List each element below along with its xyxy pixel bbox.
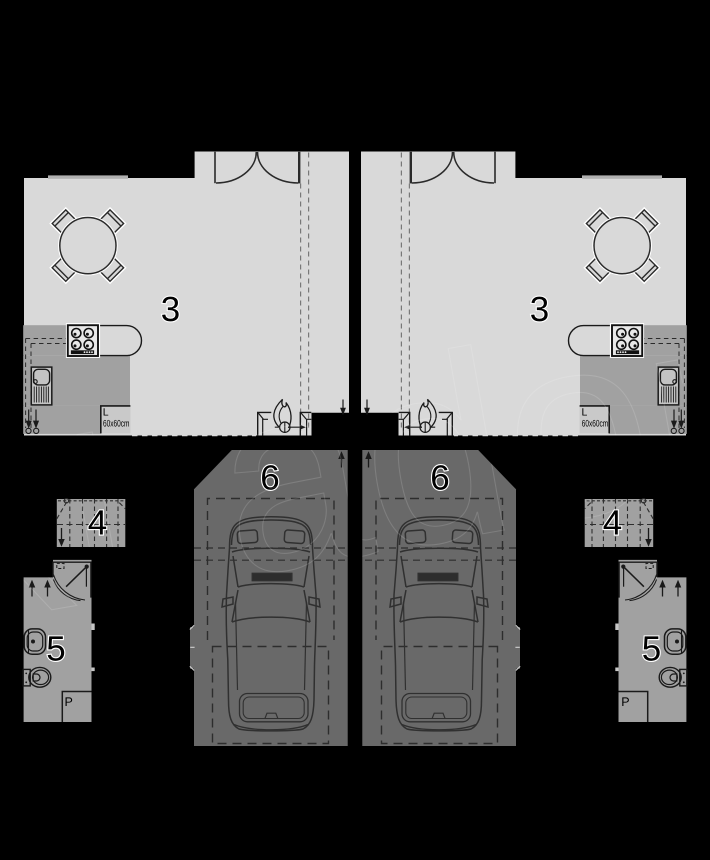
svg-text:P: P <box>65 695 73 709</box>
svg-text:5: 5 <box>642 630 661 669</box>
svg-text:P: P <box>621 695 629 709</box>
svg-text:3: 3 <box>161 290 180 329</box>
